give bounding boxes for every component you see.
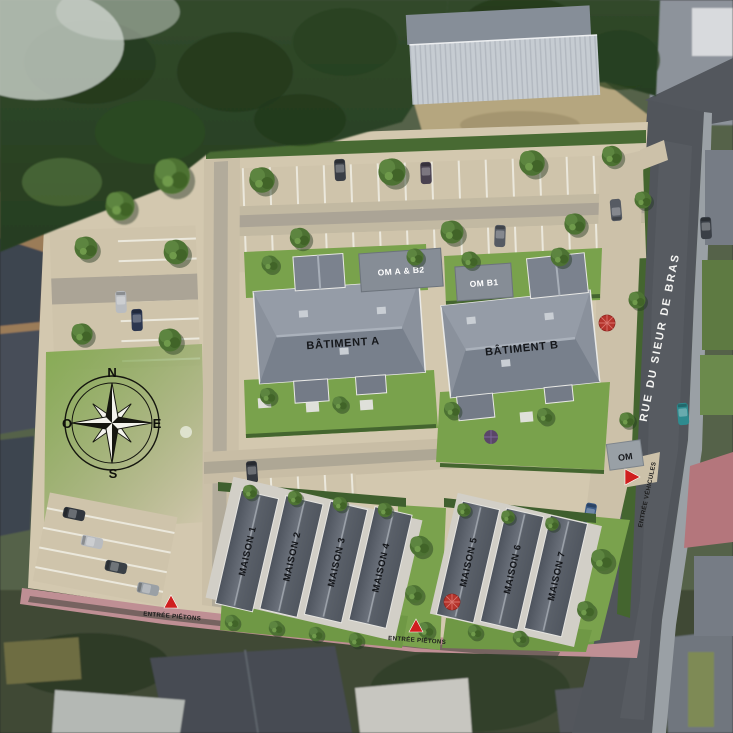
neighbor-roof	[0, 436, 34, 536]
compass-west: O	[62, 416, 72, 431]
red-parasol	[444, 594, 460, 610]
neighbor-roof	[0, 238, 44, 326]
om-b1-label: OM B1	[469, 277, 499, 289]
om-label: OM	[617, 451, 633, 463]
compass-north: N	[107, 365, 116, 380]
compass-south: S	[109, 466, 118, 481]
parked-car	[610, 199, 623, 222]
pink-pavement	[684, 452, 733, 548]
parked-car	[677, 403, 690, 426]
parked-car	[334, 159, 346, 182]
om-shelter: OM	[606, 440, 643, 470]
site-plan-map: BÂTIMENT A BÂTIMENT B OM A & B2 OM B1 OM…	[0, 0, 733, 733]
parked-car	[700, 217, 712, 240]
om-a-b2-shelter: OM A & B2	[359, 248, 443, 292]
parked-car	[494, 225, 506, 247]
parked-car	[131, 309, 143, 331]
neighbor-roof	[694, 556, 733, 636]
om-b1-shelter: OM B1	[455, 263, 513, 301]
purple-parasol	[484, 430, 498, 444]
neighbor-roof	[0, 330, 40, 434]
site-plan-screenshot: BÂTIMENT A BÂTIMENT B OM A & B2 OM B1 OM…	[0, 0, 733, 733]
parked-car	[246, 461, 259, 484]
parked-car	[115, 291, 127, 313]
garden-bed	[4, 637, 82, 684]
warehouse-building	[406, 5, 600, 105]
parked-car	[420, 162, 432, 184]
compass-east: E	[153, 416, 162, 431]
red-parasol	[599, 315, 615, 331]
